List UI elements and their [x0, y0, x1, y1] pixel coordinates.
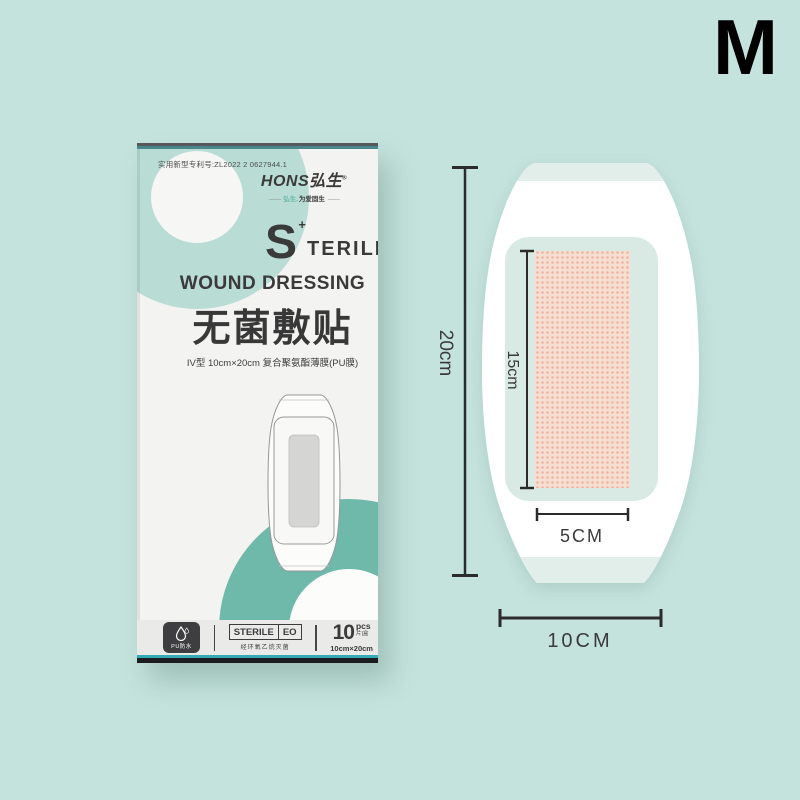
illustration-pad: [289, 435, 319, 527]
box-front-face: 实用新型专利号:ZL2022 2 0627944.1 HONS弘生® ——弘生,…: [137, 149, 378, 620]
chinese-title: 无菌敷贴: [167, 297, 378, 352]
eo-caption: 经环氧乙烷灭菌: [241, 642, 290, 651]
tagline-brand: 弘生,: [283, 196, 298, 203]
box-footer-strip: PU防水 STERILE EO 经环氧乙烷灭菌 10 pcs 片|盒: [137, 620, 378, 655]
count-unit-cn: 片|盒: [356, 631, 371, 638]
tagline-slogan: 为爱固生: [299, 196, 325, 203]
eo-word: EO: [278, 625, 301, 639]
spec-text: IV型 10cm×20cm 复合聚氨酯薄膜(PU膜): [162, 355, 378, 369]
count-unit: pcs: [356, 622, 371, 631]
tagline-dash-left: ——: [269, 196, 280, 203]
dressing-top-tab: [470, 163, 710, 181]
sterile-word: STERILE: [230, 625, 278, 639]
dim-label-width: 10CM: [547, 630, 612, 652]
dressing-illustration: [263, 392, 345, 574]
plus-icon: +: [298, 220, 306, 231]
count-badge: 10 pcs 片|盒 10cm×20cm: [330, 622, 373, 653]
sterile-eo-box: STERILE EO: [229, 624, 302, 640]
footer-divider: [315, 625, 317, 651]
brand-logo: HONS弘生® ——弘生,为爱固生——: [238, 174, 370, 203]
waterproof-badge: PU防水: [163, 622, 200, 653]
dressing-pad: [535, 251, 630, 488]
count-size: 10cm×20cm: [330, 644, 373, 653]
size-label: M: [713, 2, 776, 93]
dim-label-pad-width: 5CM: [560, 526, 604, 546]
brand-tagline: ——弘生,为爱固生——: [238, 193, 370, 203]
wound-dressing-title: WOUND DRESSING: [167, 273, 378, 295]
droplet-icon: [175, 626, 189, 641]
count-number: 10: [333, 622, 354, 643]
footer-divider: [214, 625, 216, 651]
sterile-rest: TERILE: [307, 238, 378, 262]
dim-label-pad-height: 15cm: [504, 350, 521, 389]
dimension-diagram: 20cm 15cm 5CM 10CM: [440, 150, 730, 665]
sterile-initial: S+: [265, 223, 297, 262]
product-image: M 实用新型专利号:ZL2022 2 0627944.1 HONS弘生® ——弘…: [0, 0, 800, 800]
sterilization-badge: STERILE EO 经环氧乙烷灭菌: [229, 624, 302, 651]
brand-name: HONS弘生®: [238, 174, 370, 190]
tagline-dash-right: ——: [328, 196, 339, 203]
dim-label-height: 20cm: [440, 330, 456, 376]
dressing-bottom-tab: [470, 557, 710, 584]
box-bottom-edge: [137, 655, 378, 663]
sterile-title: S+ TERILE: [265, 223, 378, 262]
patent-number: 实用新型专利号:ZL2022 2 0627944.1: [158, 159, 287, 170]
registered-mark: ®: [342, 176, 347, 182]
product-box: 实用新型专利号:ZL2022 2 0627944.1 HONS弘生® ——弘生,…: [137, 143, 378, 663]
waterproof-label: PU防水: [171, 642, 192, 650]
